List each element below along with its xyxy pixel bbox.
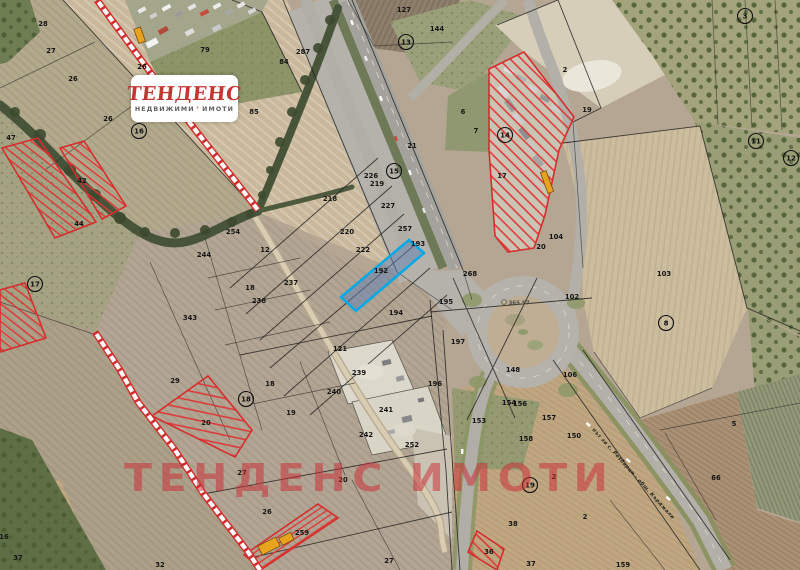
parcel-number-label: 26: [137, 63, 147, 71]
parcel-number-label: 343: [183, 314, 197, 322]
parcel-number-label: 103: [657, 270, 671, 278]
parcel-number-label: 104: [549, 233, 563, 241]
parcel-number-label: 18: [245, 284, 255, 292]
parcel-number-label: 32: [155, 561, 165, 569]
region-number-label: 16: [134, 128, 144, 136]
parcel-number-label: 121: [333, 345, 347, 353]
region-number-label: 19: [525, 482, 535, 490]
parcel-number-label: 153: [472, 417, 486, 425]
region-number-label: 15: [389, 168, 399, 176]
parcel-number-label: 27: [384, 557, 394, 565]
logo-subtitle-word: ИМОТИ: [202, 106, 234, 113]
parcel-number-label: 195: [439, 298, 453, 306]
parcel-number-label: 5: [732, 420, 737, 428]
satellite-map-canvas: 2827262626474244792871271448485219671721…: [0, 0, 800, 570]
parcel-number-label: 196: [428, 380, 442, 388]
parcel-number-label: 7: [474, 127, 479, 135]
parcel-number-label: 222: [356, 246, 370, 254]
agency-logo-subtitle: НЕДВИЖИМИ’ИМОТИ: [135, 106, 234, 113]
parcel-number-label: 254: [226, 228, 240, 236]
parcel-number-label: 19: [286, 409, 296, 417]
agency-logo: ТЕНДЕНС НЕДВИЖИМИ’ИМОТИ: [131, 75, 238, 122]
parcel-number-label: 20: [536, 243, 546, 251]
region-number-label: 12: [786, 155, 796, 163]
parcel-number-label: 26: [68, 75, 78, 83]
region-number-label: 3: [743, 13, 748, 21]
parcel-number-label: 150: [567, 432, 581, 440]
agency-logo-title: ТЕНДЕНС: [126, 85, 243, 104]
parcel-number-label: 19: [582, 106, 592, 114]
region-number-label: 17: [30, 281, 40, 289]
parcel-number-label: 157: [542, 414, 556, 422]
parcel-number-label: 26: [103, 115, 113, 123]
parcel-number-label: 106: [563, 371, 577, 379]
parcel-number-label: 219: [370, 180, 384, 188]
parcel-number-label: 84: [279, 58, 289, 66]
parcel-number-label: 241: [379, 406, 393, 414]
logo-subtitle-word: НЕДВИЖИМИ: [135, 106, 195, 113]
region-number-label: 18: [241, 396, 251, 404]
parcel-number-label: 193: [411, 240, 425, 248]
parcel-number-label: 37: [13, 554, 23, 562]
parcel-number-label: 2: [563, 66, 568, 74]
parcel-number-label: 197: [451, 338, 465, 346]
parcel-number-label: 66: [711, 474, 721, 482]
parcel-number-label: 42: [77, 177, 87, 185]
parcel-number-label: 29: [170, 377, 180, 385]
parcel-number-label: 218: [323, 195, 337, 203]
parcel-number-label: 259: [295, 529, 309, 537]
parcel-number-label: 240: [327, 388, 341, 396]
parcel-number-label: 127: [397, 6, 411, 14]
parcel-number-label: 6: [461, 108, 466, 116]
parcel-number-label: 257: [398, 225, 412, 233]
parcel-number-label: 44: [74, 220, 84, 228]
parcel-number-label: 238: [252, 297, 266, 305]
parcel-number-label: 36: [484, 548, 494, 556]
region-number-label: 14: [500, 132, 510, 140]
parcel-number-label: 226: [364, 172, 378, 180]
region-number-label: 13: [401, 39, 411, 47]
parcel-number-label: 37: [526, 560, 536, 568]
parcel-number-label: 268: [463, 270, 477, 278]
parcel-number-label: 194: [389, 309, 403, 317]
parcel-number-label: 85: [249, 108, 259, 116]
parcel-number-label: 12: [260, 246, 270, 254]
parcel-number-label: 239: [352, 369, 366, 377]
parcel-number-label: 27: [46, 47, 56, 55]
parcel-number-label: 237: [284, 279, 298, 287]
parcel-number-label: 244: [197, 251, 211, 259]
parcel-number-label: 2: [583, 513, 588, 521]
parcel-number-label: 287: [296, 48, 310, 56]
parcel-number-label: 21: [407, 142, 417, 150]
parcel-number-label: 2: [552, 473, 557, 481]
cadastral-map-screenshot[interactable]: 2827262626474244792871271448485219671721…: [0, 0, 800, 570]
logo-accent-mark: ’: [197, 106, 201, 113]
parcel-number-label: 38: [508, 520, 518, 528]
region-number-label: 8: [664, 320, 669, 328]
parcel-number-label: 158: [519, 435, 533, 443]
parcel-number-label: 20: [338, 476, 348, 484]
region-number-label: 11: [751, 138, 761, 146]
parcel-number-label: 27: [237, 469, 247, 477]
parcel-number-label: 144: [430, 25, 444, 33]
parcel-number-label: 220: [340, 228, 354, 236]
parcel-number-label: 252: [405, 441, 419, 449]
parcel-number-label: 102: [565, 293, 579, 301]
parcel-number-label: 192: [374, 267, 388, 275]
parcel-number-label: 16: [0, 533, 9, 541]
parcel-number-label: 18: [265, 380, 275, 388]
parcel-number-label: 242: [359, 431, 373, 439]
parcel-number-label: 227: [381, 202, 395, 210]
parcel-number-label: 79: [200, 46, 210, 54]
parcel-number-label: 159: [616, 561, 630, 569]
parcel-number-label: 26: [262, 508, 272, 516]
parcel-number-label: 28: [38, 20, 48, 28]
parcel-number-label: 47: [6, 134, 16, 142]
parcel-number-label: 148: [506, 366, 520, 374]
survey-point-label: 365 57: [508, 301, 529, 307]
parcel-number-label: 17: [497, 172, 507, 180]
parcel-number-label: 20: [201, 419, 211, 427]
parcel-number-label: 156: [513, 400, 527, 408]
